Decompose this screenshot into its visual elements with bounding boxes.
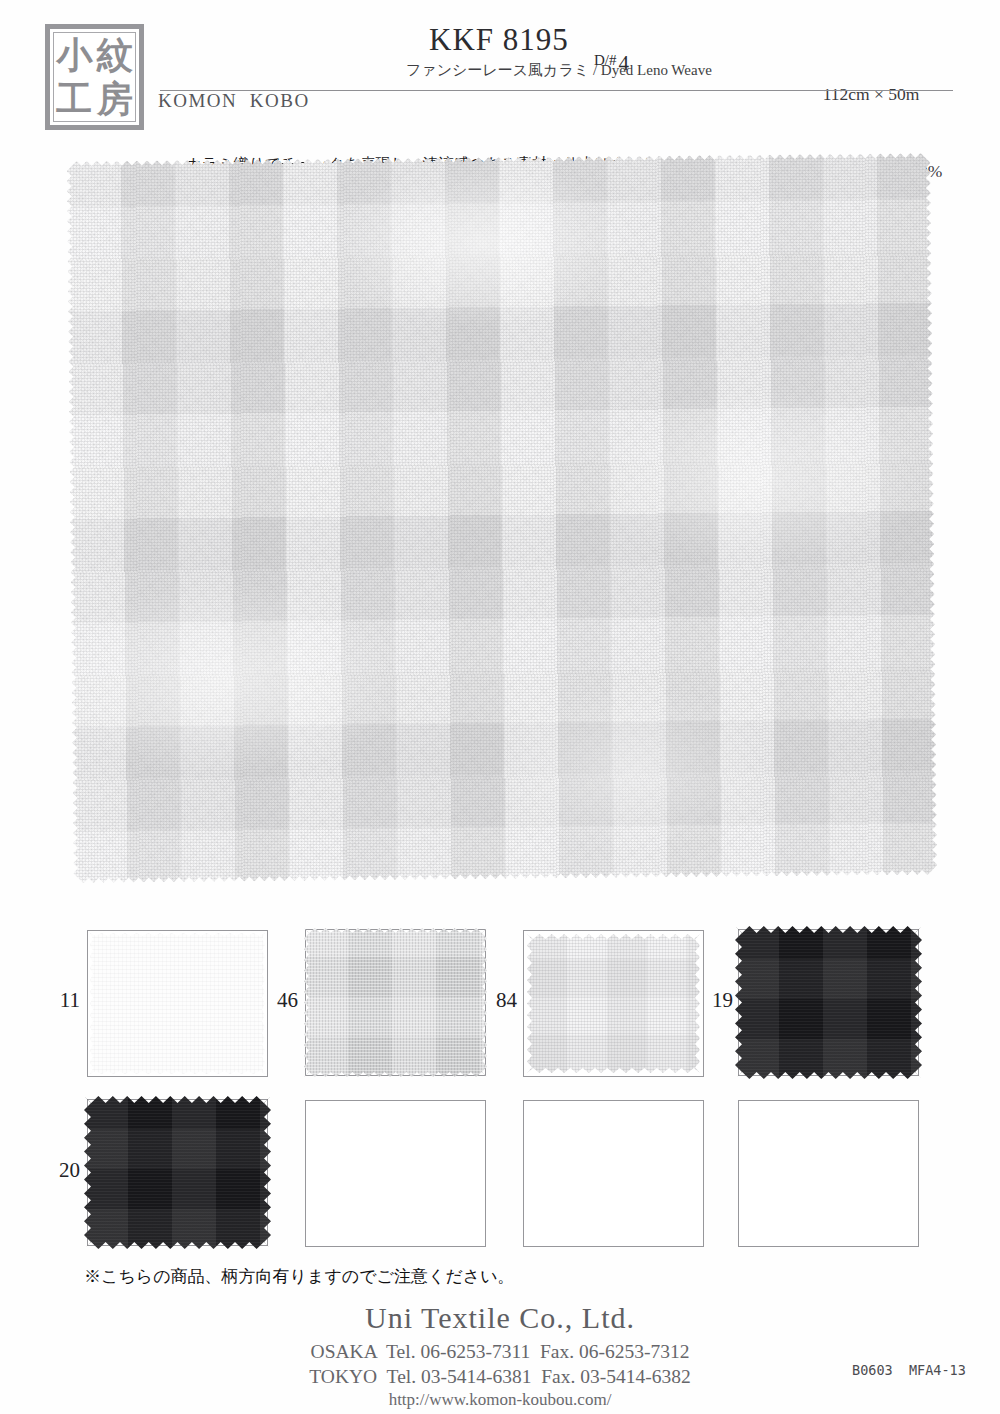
swatch-box-84 <box>523 930 704 1077</box>
main-fabric-sample <box>67 153 938 883</box>
swatch-fabric-46 <box>304 928 487 1077</box>
product-subtitle: ファンシーレース風カラミ / Dyed Leno Weave <box>406 61 712 80</box>
swatch-fabric-84 <box>527 934 700 1073</box>
swatch-number-19: 19 <box>683 988 733 1013</box>
document-code: B0603 MFA4-13 <box>852 1362 966 1378</box>
logo-kanji-kou: 工 <box>56 81 92 117</box>
product-code: KKF 8195 <box>429 22 569 58</box>
company-name: Uni Textile Co., Ltd. <box>0 1301 1000 1335</box>
catalog-page: 小 紋 工 房 KOMON KOBO MADE IN JAPAN KKF 819… <box>0 0 1000 1414</box>
spec-size: 112cm × 50m <box>788 82 954 108</box>
osaka-contact: OSAKA Tel. 06-6253-7311 Fax. 06-6253-731… <box>0 1341 1000 1363</box>
empty-swatch-slot-1 <box>305 1100 486 1247</box>
logo-kanji-ko: 小 <box>56 37 92 73</box>
logo-inner-frame: 小 紋 工 房 <box>53 32 136 122</box>
swatch-box-20 <box>87 1099 268 1246</box>
empty-swatch-slot-3 <box>738 1100 919 1247</box>
swatch-fabric-20 <box>84 1096 271 1249</box>
swatch-number-46: 46 <box>248 988 298 1013</box>
swatch-box-46 <box>305 929 486 1076</box>
header-divider <box>160 90 953 91</box>
swatch-number-11: 11 <box>30 988 80 1013</box>
swatch-box-11 <box>87 930 268 1077</box>
swatch-number-84: 84 <box>467 988 517 1013</box>
swatch-fabric-19 <box>735 926 922 1079</box>
swatch-box-19 <box>738 929 919 1076</box>
logo-kanji-bou: 房 <box>97 81 133 117</box>
caution-note: ※こちらの商品、柄方向有りますのでご注意ください。 <box>84 1265 515 1288</box>
tokyo-contact: TOKYO Tel. 03-5414-6381 Fax. 03-5414-638… <box>0 1366 1000 1388</box>
komon-kobo-stamp-logo: 小 紋 工 房 <box>45 24 144 130</box>
empty-swatch-slot-2 <box>523 1100 704 1247</box>
website-url: http://www.komon-koubou.com/ <box>0 1390 1000 1410</box>
swatch-fabric-11 <box>90 933 265 1074</box>
logo-kanji-mon: 紋 <box>97 37 133 73</box>
swatch-number-20: 20 <box>30 1158 80 1183</box>
